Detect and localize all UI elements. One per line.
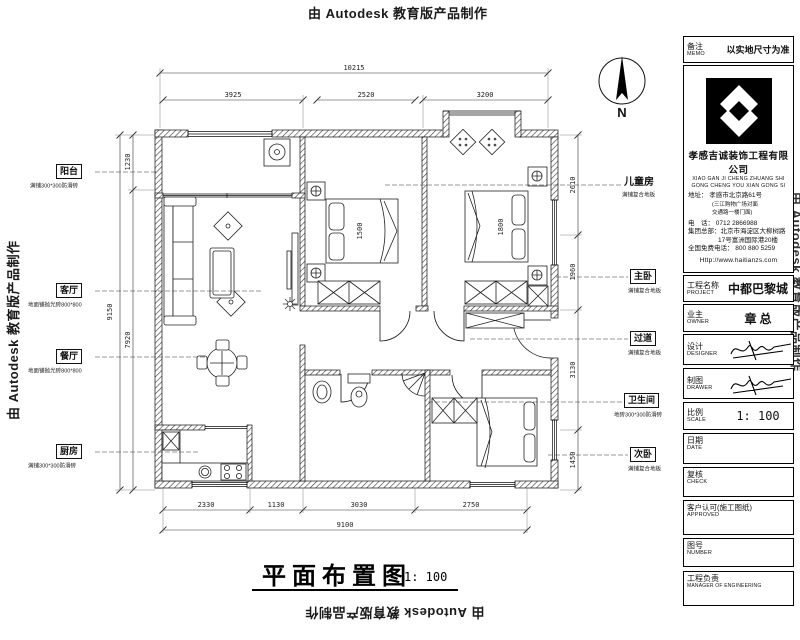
bed-size-master: 1800 (497, 219, 505, 236)
manager-label: 工程负责 (687, 574, 793, 583)
room-label-secondbed: 次卧 (630, 447, 656, 462)
titleblock-approved: 客户认可(施工图纸) APPROVED (683, 500, 794, 535)
scale-value: 1: 100 (723, 409, 793, 423)
floor-plan-svg: N 10215 3925 2520 3200 2330 1130 3030 27… (0, 0, 800, 640)
company-pinyin-2: GONG CHENG YOU XIAN GONG SI (684, 183, 793, 190)
bed-second (477, 398, 537, 468)
dim-bottom-seg: 2330 (198, 501, 215, 509)
titleblock-number: 图号 NUMBER (683, 538, 794, 567)
project-label: 工程名称 (687, 281, 723, 290)
approved-label-en: APPROVED (687, 512, 793, 519)
date-label: 日期 (687, 436, 793, 445)
manager-label-en: MANAGER OF ENGINEERING (687, 583, 793, 590)
dim-bottom-seg: 3030 (351, 501, 368, 509)
company-hq-2: 17号富洲国际港20楼 (684, 237, 793, 246)
room-label-hallway: 过道 (630, 331, 656, 346)
bathroom-fixtures (313, 373, 425, 407)
dim-bottom-seg: 1130 (268, 501, 285, 509)
room-note-balcony: 满铺300*300防滑砖 (30, 184, 78, 190)
sofa (164, 197, 196, 325)
room-label-kidsroom: 儿童房 (624, 177, 654, 189)
titleblock-project: 工程名称 PROJECT 中都巴黎城 (683, 275, 794, 302)
titleblock-scale: 比例 SCALE 1: 100 (683, 402, 794, 430)
scale-label-en: SCALE (687, 417, 723, 424)
kitchen-counter (162, 430, 248, 481)
title-underline (252, 589, 458, 591)
designer-label: 设计 (687, 342, 723, 351)
company-pinyin-1: XIAO GAN JI CHENG ZHUANG SHI (684, 176, 793, 183)
number-label: 图号 (687, 541, 793, 550)
company-logo (706, 78, 772, 144)
dim-right-seg: 3130 (569, 362, 577, 379)
room-label-master: 主卧 (630, 269, 656, 284)
room-note-hallway: 满铺复合地板 (628, 351, 661, 357)
hall-cabinet (466, 313, 524, 328)
company-phone: 电 话： 0712 2866988 (684, 220, 793, 229)
dim-right-seg: 1960 (569, 264, 577, 281)
company-address-note-1: (三江购物广场对面 (684, 201, 793, 210)
dim-left-seg: 7920 (124, 332, 132, 349)
room-note-master: 满铺复合地板 (628, 289, 661, 295)
room-label-kitchen: 厨房 (56, 444, 82, 459)
wardrobe-child (318, 281, 380, 304)
north-arrow-icon: N (599, 56, 645, 120)
dim-bottom-overall: 9100 (337, 521, 354, 529)
company-address-note-2: 交通路一楼门面) (684, 209, 793, 218)
company-website: Http://www.haitianzs.com (684, 257, 793, 264)
dim-top-seg: 3200 (477, 91, 494, 99)
drawer-signature (723, 369, 794, 398)
titleblock-date: 日期 DATE (683, 433, 794, 464)
room-note-dining: 地面铺抛光砖800*800 (28, 369, 82, 375)
approved-label: 客户认可(施工图纸) (687, 503, 793, 512)
dim-bottom-seg: 2750 (463, 501, 480, 509)
room-note-kitchen: 满铺300*300防滑砖 (28, 464, 76, 470)
drawer-label-en: DRAWER (687, 385, 723, 392)
dim-top-seg: 3925 (225, 91, 242, 99)
titleblock-company: 孝感吉诚装饰工程有限公司 XIAO GAN JI CHENG ZHUANG SH… (683, 65, 794, 273)
room-label-dining: 餐厅 (56, 349, 82, 364)
date-label-en: DATE (687, 445, 793, 452)
designer-signature (723, 335, 794, 364)
project-value: 中都巴黎城 (723, 280, 793, 297)
bed-child (307, 182, 398, 282)
memo-label: 备注 (687, 42, 723, 51)
coffee-table (210, 248, 234, 298)
room-label-balcony: 阳台 (56, 164, 82, 179)
room-label-bathroom: 卫生间 (624, 393, 659, 408)
dining-table (197, 340, 247, 386)
dim-right-seg: 1450 (569, 452, 577, 469)
room-note-secondbed: 满铺复合地板 (628, 467, 661, 473)
room-note-living: 地面铺抛光砖800*800 (28, 303, 82, 309)
plant (283, 297, 297, 311)
titleblock-check: 复核 CHECK (683, 467, 794, 497)
sheet-title: 平面布置图 (262, 556, 412, 591)
cad-sheet: 由 Autodesk 教育版产品制作 由 Autodesk 教育版产品制作 由 … (0, 0, 800, 640)
owner-label-en: OWNER (687, 319, 723, 326)
check-label-en: CHECK (687, 479, 793, 486)
scale-label: 比例 (687, 408, 723, 417)
titleblock-manager: 工程负责 MANAGER OF ENGINEERING (683, 571, 794, 606)
number-label-en: NUMBER (687, 550, 793, 557)
check-label: 复核 (687, 470, 793, 479)
drawer-label: 制图 (687, 376, 723, 385)
dim-left-overall: 9150 (106, 304, 114, 321)
designer-label-en: DESIGNER (687, 351, 723, 358)
memo-label-en: MEMO (687, 51, 723, 58)
washing-machine (264, 139, 290, 166)
titleblock-drawer: 制图 DRAWER (683, 368, 794, 399)
tv-cabinet (287, 233, 298, 305)
dim-top-overall: 10215 (343, 64, 364, 72)
bed-size-child: 1500 (356, 223, 364, 240)
project-label-en: PROJECT (687, 290, 723, 297)
owner-label: 业主 (687, 310, 723, 319)
room-note-bathroom: 地砖300*300防滑砖 (614, 413, 662, 419)
memo-value: 以实地尺寸为准 (723, 43, 793, 56)
room-note-kidsroom: 满铺复合地板 (622, 193, 655, 199)
titleblock-designer: 设计 DESIGNER (683, 334, 794, 365)
dim-top-seg: 2520 (358, 91, 375, 99)
north-label: N (617, 105, 626, 120)
sheet-scale: 1: 100 (404, 570, 447, 584)
company-hotline: 全国免费电话： 800 880 5259 (684, 245, 793, 254)
room-label-living: 客厅 (56, 283, 82, 298)
dim-right-seg: 2610 (569, 177, 577, 194)
company-address: 地址： 孝感市北京路61号 (684, 192, 793, 201)
company-name: 孝感吉诚装饰工程有限公司 (684, 148, 793, 176)
dim-left-seg: 1230 (124, 154, 132, 171)
titleblock-owner: 业主 OWNER 章 总 (683, 304, 794, 332)
titleblock-memo: 备注 MEMO 以实地尺寸为准 (683, 36, 794, 63)
bay-cushions (450, 129, 504, 154)
owner-value: 章 总 (723, 310, 793, 327)
company-hq-1: 集团总部：北京市海淀区大柳树路 (684, 228, 793, 237)
